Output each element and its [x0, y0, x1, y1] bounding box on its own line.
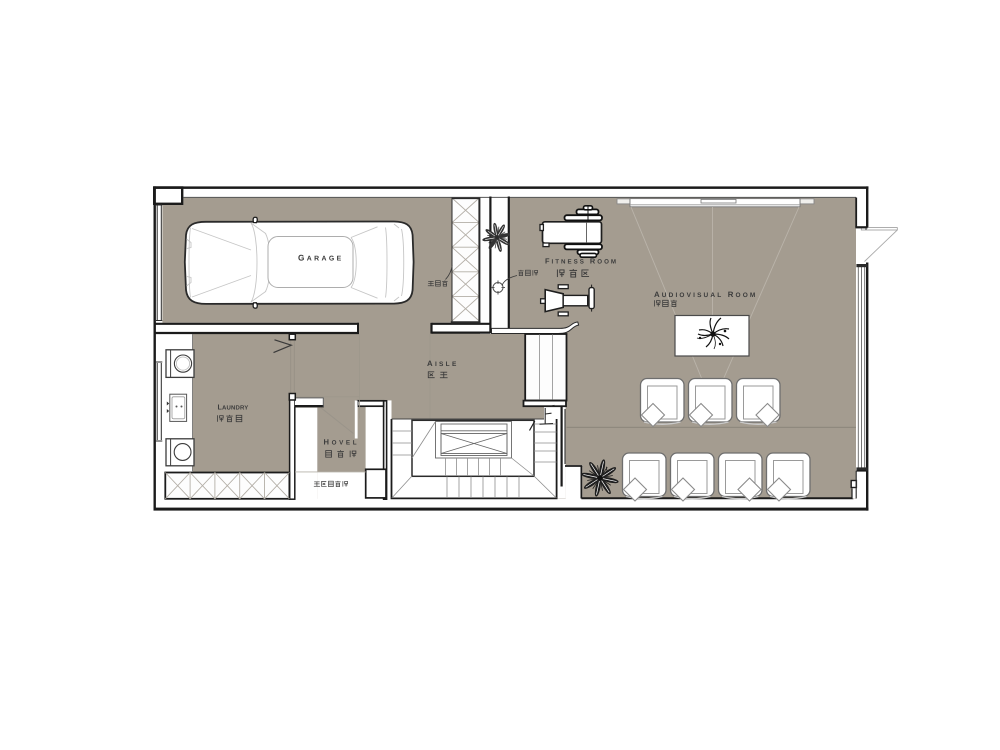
svg-text:AUDIOVISUAL ROOM: AUDIOVISUAL ROOM [654, 290, 757, 299]
svg-text:AISLE: AISLE [427, 359, 459, 368]
svg-text:GARAGE: GARAGE [298, 254, 344, 263]
svg-text:HOVEL: HOVEL [324, 438, 360, 447]
svg-text:FITNESS ROOM: FITNESS ROOM [545, 257, 618, 266]
